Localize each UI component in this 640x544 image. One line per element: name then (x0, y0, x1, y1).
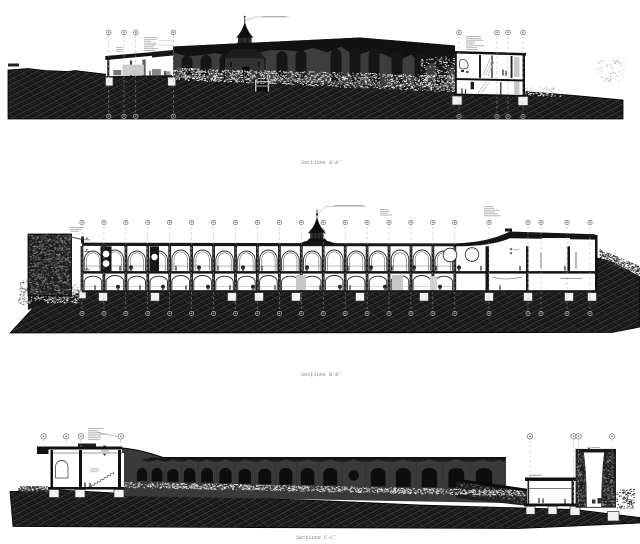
svg-text:Secțiune B-B’: Secțiune B-B’ (301, 372, 341, 378)
svg-text:Secțiune C-C’: Secțiune C-C’ (296, 535, 336, 541)
svg-text:Secțiune A-A’: Secțiune A-A’ (301, 160, 341, 166)
